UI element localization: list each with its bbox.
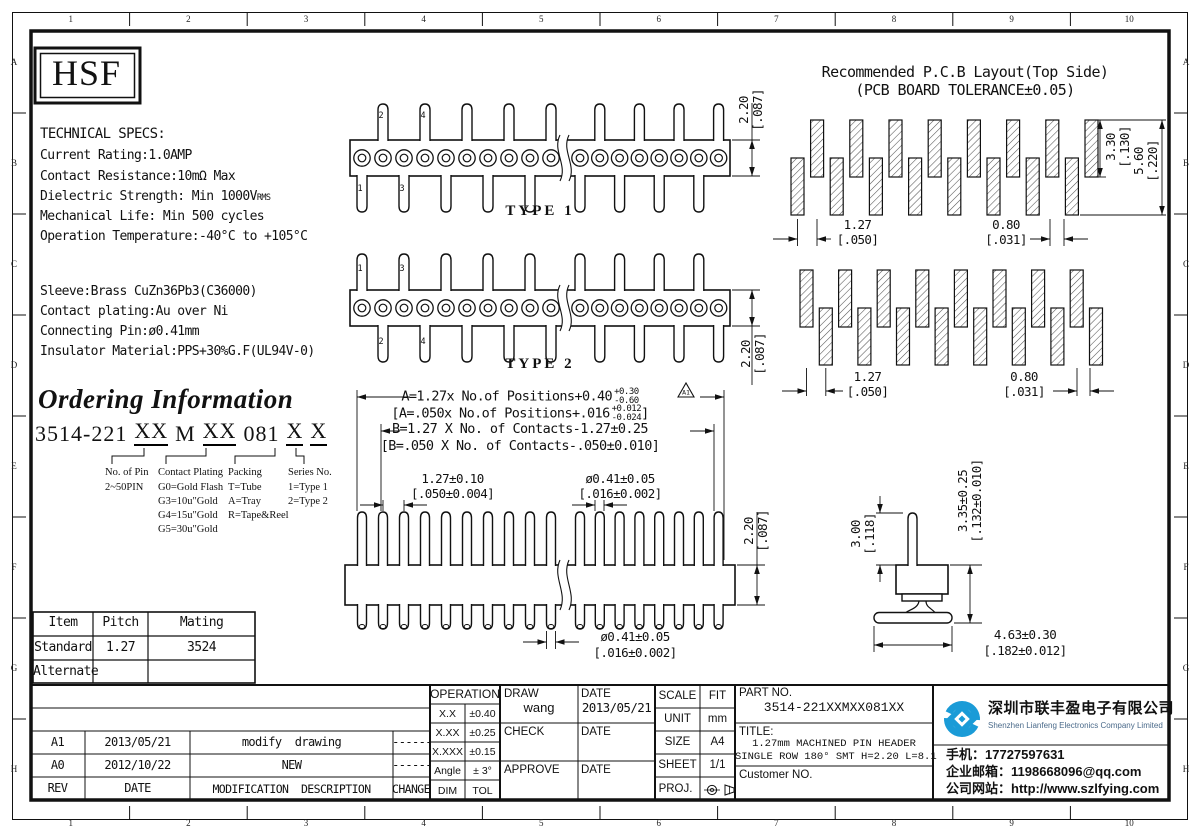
pcb1-gap-metric: 0.80: [980, 218, 1032, 232]
tolerance-title: OPERATION: [430, 688, 500, 702]
mating-row-value: 3524: [148, 641, 255, 656]
tol-dim: DIM: [430, 785, 465, 797]
check-label: CHECK: [504, 726, 544, 739]
tol-val: ± 3°: [465, 765, 500, 777]
type2-height-dim: 2.20[.087]: [739, 327, 767, 381]
grid-label: B: [6, 158, 22, 168]
dim-463-inch: [.182±0.012]: [970, 644, 1080, 658]
dim-dia-bottom-inch: [.016±0.002]: [587, 646, 683, 660]
legend-packing-item: A=Tray: [228, 495, 261, 509]
grid-label: 7: [768, 14, 784, 24]
pcb2-gap-inch: [.031]: [998, 385, 1050, 399]
material-line: Contact plating:Au over Ni: [40, 305, 228, 320]
tol-val: TOL: [465, 785, 500, 797]
unit-value: mm: [700, 713, 735, 726]
svg-text:1: 1: [357, 264, 362, 274]
title-line2: SINGLE ROW 180° SMT H=2.20 L=8.1: [735, 751, 933, 763]
legend-series-title: Series No.: [288, 466, 332, 480]
tol-dim: X.X: [430, 708, 465, 720]
type1-height-dim: 2.20[.087]: [737, 83, 765, 137]
svg-text:2: 2: [378, 111, 383, 121]
ordering-heading: Ordering Information: [38, 384, 293, 415]
dim-pitch-metric: 1.27±0.10: [410, 472, 495, 486]
scale-label: SCALE: [655, 690, 700, 703]
svg-text:4: 4: [420, 111, 425, 121]
legend-plating-item: G5=30u"Gold: [158, 523, 218, 537]
drawing-sheet: 24131324A1 HSF TECHNICAL SPECS: Current …: [0, 0, 1200, 832]
check-date-label: DATE: [581, 726, 611, 739]
pcb2-pitch-inch: [.050]: [840, 385, 895, 399]
material-line: Connecting Pin:ø0.41mm: [40, 325, 199, 340]
company-email: 企业邮箱：1198668096@qq.com: [946, 765, 1141, 780]
pcb2-pitch-metric: 1.27: [840, 370, 895, 384]
rev-id: A1: [30, 736, 85, 750]
formula-a-metric: A=1.27x No.of Positions+0.40+0.30-0.60: [370, 388, 670, 405]
formula-a-inch: [A=.050x No.of Positions+.016+0.012-0.02…: [370, 405, 670, 422]
pcb-layout-subtitle: (PCB BOARD TOLERANCE±0.05): [795, 82, 1135, 99]
mating-header-mating: Mating: [148, 616, 255, 631]
proj-label: PROJ.: [653, 783, 698, 796]
legend-plating-item: G0=Gold Flash: [158, 481, 223, 495]
grid-label: H: [6, 764, 22, 774]
formula-b-inch: [B=.050 X No. of Contacts-.050±0.010]: [370, 439, 670, 455]
grid-label: C: [6, 259, 22, 269]
pcb2-gap-metric: 0.80: [998, 370, 1050, 384]
hsf-logo: HSF: [52, 53, 121, 94]
draw-name: wang: [500, 701, 578, 716]
mating-header-item: Item: [33, 616, 93, 631]
legend-series-item: 2=Type 2: [288, 495, 328, 509]
legend-series-item: 1=Type 1: [288, 481, 328, 495]
grid-label: G: [1178, 663, 1194, 673]
mating-row-pitch: 1.27: [93, 641, 148, 656]
rev-id: A0: [30, 759, 85, 773]
part-seg: 081: [243, 421, 279, 446]
grid-label: B: [1178, 158, 1194, 168]
grid-label: A: [6, 57, 22, 67]
rev-header: MODIFICATION DESCRIPTION: [190, 783, 393, 796]
grid-label: 3: [298, 818, 314, 828]
grid-label: 8: [886, 818, 902, 828]
rev-change: ------: [390, 759, 434, 773]
approve-date-label: DATE: [581, 764, 611, 777]
part-seg: 3514-221: [35, 421, 127, 446]
tol-dim: X.XX: [430, 727, 465, 739]
pcb1-pitch-inch: [.050]: [830, 233, 885, 247]
spec-line: Contact Resistance:10mΩ Max: [40, 170, 235, 185]
part-seg-pin: XX: [134, 418, 168, 446]
pcb-layout-title: Recommended P.C.B Layout(Top Side): [795, 64, 1135, 81]
grid-label: 10: [1121, 818, 1137, 828]
draw-date-value: 2013/05/21: [578, 701, 655, 715]
part-seg: M: [175, 421, 196, 446]
part-seg-plating: XX: [203, 418, 237, 446]
pcb1-pitch-metric: 1.27: [830, 218, 885, 232]
grid-label: H: [1178, 764, 1194, 774]
approve-label: APPROVE: [504, 764, 560, 777]
grid-label: D: [1178, 360, 1194, 370]
mating-row-item: Standard: [33, 641, 93, 656]
material-line: Insulator Material:PPS+30%G.F(UL94V-0): [40, 345, 315, 360]
type2-label: TYPE 2: [490, 356, 590, 373]
grid-label: 9: [1004, 818, 1020, 828]
svg-text:1: 1: [357, 184, 362, 194]
grid-label: G: [6, 663, 22, 673]
rev-desc: modify drawing: [190, 736, 393, 750]
part-no-value: 3514-221XXMXX081XX: [735, 701, 933, 716]
spec-line: Current Rating:1.0AMP: [40, 149, 192, 164]
company-website: 公司网站：http://www.szlfying.com: [946, 782, 1159, 797]
grid-label: 4: [416, 818, 432, 828]
size-label: SIZE: [655, 736, 700, 749]
grid-label: 6: [651, 818, 667, 828]
mating-row-item: Alternate: [33, 665, 93, 680]
grid-label: F: [6, 562, 22, 572]
formula-b-metric: B=1.27 X No. of Contacts-1.27±0.25: [370, 422, 670, 438]
title-line1: 1.27mm MACHINED PIN HEADER: [735, 738, 933, 750]
body-height-dim: 2.20[.087]: [742, 504, 770, 558]
svg-text:4: 4: [420, 337, 425, 347]
type1-label: TYPE 1: [490, 203, 590, 220]
legend-packing-item: T=Tube: [228, 481, 262, 495]
grid-label: 3: [298, 14, 314, 24]
spec-line: Mechanical Life: Min 500 cycles: [40, 210, 264, 225]
dim-dia-bottom-metric: ø0.41±0.05: [590, 630, 680, 644]
legend-pin-title: No. of Pin: [105, 466, 148, 480]
part-seg-series: X: [310, 418, 327, 446]
grid-label: 5: [533, 14, 549, 24]
grid-label: 6: [651, 14, 667, 24]
tol-dim: X.XXX: [430, 746, 465, 758]
tol-val: ±0.40: [465, 708, 500, 720]
rev-header: CHANGE: [386, 783, 436, 796]
mating-header-pitch: Pitch: [93, 616, 148, 631]
grid-label: E: [1178, 461, 1194, 471]
grid-label: 5: [533, 818, 549, 828]
tol-val: ±0.25: [465, 727, 500, 739]
legend-packing-item: R=Tape&Reel: [228, 509, 289, 523]
svg-text:A1: A1: [682, 389, 690, 397]
svg-text:2: 2: [378, 337, 383, 347]
scale-value: FIT: [700, 690, 735, 703]
size-value: A4: [700, 736, 735, 749]
company-name-cn: 深圳市联丰盈电子有限公司: [988, 700, 1174, 717]
rev-date: 2012/10/22: [85, 759, 190, 773]
pcb1-gap-inch: [.031]: [980, 233, 1032, 247]
dim-dia-metric: ø0.41±0.05: [575, 472, 665, 486]
customer-no-label: Customer NO.: [739, 769, 813, 782]
spec-line: Operation Temperature:-40°C to +105°C: [40, 230, 307, 245]
part-no-label: PART NO.: [739, 687, 792, 700]
grid-label: 2: [180, 14, 196, 24]
grid-label: 1: [63, 818, 79, 828]
specs-title: TECHNICAL SPECS:: [40, 126, 165, 142]
unit-label: UNIT: [655, 713, 700, 726]
grid-label: 10: [1121, 14, 1137, 24]
sheet-label: SHEET: [655, 759, 700, 772]
sheet-value: 1/1: [700, 759, 735, 772]
grid-label: 8: [886, 14, 902, 24]
dim-dia-inch: [.016±0.002]: [572, 487, 668, 501]
ordering-part-number: 3514-221XXMXX081XX: [35, 418, 334, 446]
grid-label: D: [6, 360, 22, 370]
spec-line: Dielectric Strength: Min 1000VRMS: [40, 190, 270, 205]
pin-len-dim: 3.00[.118]: [849, 507, 877, 561]
legend-packing-title: Packing: [228, 466, 262, 480]
dim-pitch-inch: [.050±0.004]: [405, 487, 500, 501]
legend-plating-item: G3=10u"Gold: [158, 495, 218, 509]
pcb1-pad-len-dim: 3.30[.130]: [1104, 118, 1132, 176]
dim-463-metric: 4.63±0.30: [975, 628, 1075, 642]
grid-label: A: [1178, 57, 1194, 67]
grid-label: C: [1178, 259, 1194, 269]
company-phone: 手机：17727597631: [946, 748, 1065, 763]
smt-height-dim: 3.35±0.25[.132±0.010]: [956, 451, 984, 551]
grid-label: E: [6, 461, 22, 471]
grid-label: F: [1178, 562, 1194, 572]
rev-header: REV: [30, 782, 85, 796]
grid-label: 4: [416, 14, 432, 24]
grid-label: 7: [768, 818, 784, 828]
rev-date: 2013/05/21: [85, 736, 190, 750]
grid-label: 9: [1004, 14, 1020, 24]
grid-label: 1: [63, 14, 79, 24]
rev-header: DATE: [85, 782, 190, 796]
svg-text:3: 3: [399, 184, 404, 194]
rev-change: ------: [390, 736, 434, 750]
legend-pin-item: 2~50PIN: [105, 481, 143, 495]
part-seg-packing: X: [286, 418, 303, 446]
legend-plating-title: Contact Plating: [158, 466, 223, 480]
material-line: Sleeve:Brass CuZn36Pb3(C36000): [40, 285, 257, 300]
tol-val: ±0.15: [465, 746, 500, 758]
tol-dim: Angle: [430, 765, 465, 777]
legend-plating-item: G4=15u"Gold: [158, 509, 218, 523]
company-name-en: Shenzhen Lianfeng Electronics Company Li…: [988, 721, 1163, 730]
pcb1-total-dim: 5.60[.220]: [1132, 116, 1160, 206]
svg-text:3: 3: [399, 264, 404, 274]
grid-label: 2: [180, 818, 196, 828]
rev-desc: NEW: [190, 759, 393, 773]
